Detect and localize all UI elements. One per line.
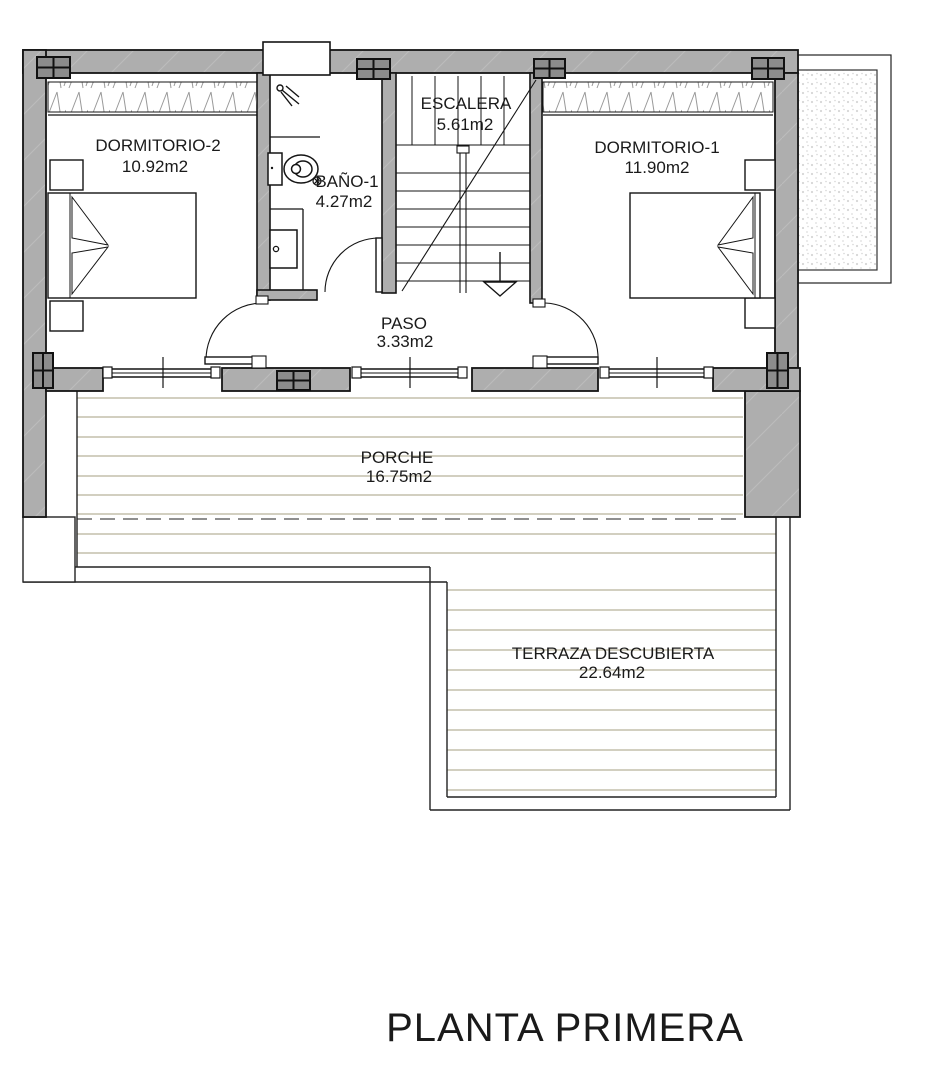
closet-dormitorio-2 <box>48 82 257 115</box>
bed-dormitorio-2 <box>48 160 196 331</box>
room-label-terraza-name: TERRAZA DESCUBIERTA <box>512 644 715 663</box>
pillar <box>33 353 53 388</box>
shower-icon <box>277 85 299 106</box>
bathroom-fixtures <box>268 85 321 290</box>
room-label-dormitorio1-name: DORMITORIO-1 <box>594 138 719 157</box>
room-label-terraza-area: 22.64m2 <box>579 663 645 682</box>
right-porch-column <box>745 391 800 517</box>
gravel-border <box>798 55 891 283</box>
nightstand <box>745 160 775 190</box>
floor-plan-canvas: DORMITORIO-2 10.92m2 BAÑO-1 4.27m2 ESCAL… <box>0 0 929 1080</box>
planter-box <box>23 517 75 582</box>
room-labels: DORMITORIO-2 10.92m2 BAÑO-1 4.27m2 ESCAL… <box>95 94 719 682</box>
room-label-paso-area: 3.33m2 <box>377 332 434 351</box>
room-label-escalera-name: ESCALERA <box>421 94 512 113</box>
top-wall <box>23 50 798 73</box>
pillar <box>37 57 70 78</box>
pillar <box>767 353 788 388</box>
windows <box>103 357 713 388</box>
window <box>352 357 467 388</box>
pillar <box>357 59 390 79</box>
plan-title: PLANTA PRIMERA <box>386 1006 744 1050</box>
bottom-wall-segment-a <box>46 368 103 391</box>
window <box>103 357 220 388</box>
nightstand <box>50 301 83 331</box>
sink-icon <box>270 209 303 290</box>
room-label-dormitorio2-name: DORMITORIO-2 <box>95 136 220 155</box>
window <box>600 357 713 388</box>
toilet-icon <box>268 153 321 185</box>
room-label-porche-name: PORCHE <box>361 448 434 467</box>
room-label-dormitorio2-area: 10.92m2 <box>122 157 188 176</box>
stair-right-wall <box>530 73 542 303</box>
room-label-porche-area: 16.75m2 <box>366 467 432 486</box>
stair-divider <box>457 146 469 293</box>
bed-dormitorio-1 <box>630 160 775 328</box>
left-wall <box>23 50 46 517</box>
bottom-wall-segment-c <box>472 368 598 391</box>
door-bathroom <box>325 238 382 292</box>
roof-vent-box <box>263 42 330 75</box>
pillar <box>534 59 565 78</box>
room-label-bano1-area: 4.27m2 <box>316 192 373 211</box>
room-label-bano1-name: BAÑO-1 <box>315 172 378 191</box>
nightstand <box>745 298 775 328</box>
nightstand <box>50 160 83 190</box>
stair-left-wall <box>382 73 396 293</box>
bath-left-partition <box>257 73 270 300</box>
pillar <box>752 58 784 79</box>
room-label-escalera-area: 5.61m2 <box>437 115 494 134</box>
door-dormitorio-2 <box>205 296 268 368</box>
door-dormitorio-1 <box>533 299 598 368</box>
floor-plan-drawing: DORMITORIO-2 10.92m2 BAÑO-1 4.27m2 ESCAL… <box>0 0 929 1080</box>
pillar <box>277 371 310 390</box>
stair-down-arrow <box>484 252 516 296</box>
terrace-deck <box>447 590 776 790</box>
room-label-dormitorio1-area: 11.90m2 <box>625 158 690 177</box>
room-label-paso-name: PASO <box>381 314 427 333</box>
closet-dormitorio-1 <box>543 82 773 115</box>
right-wall <box>775 73 798 368</box>
